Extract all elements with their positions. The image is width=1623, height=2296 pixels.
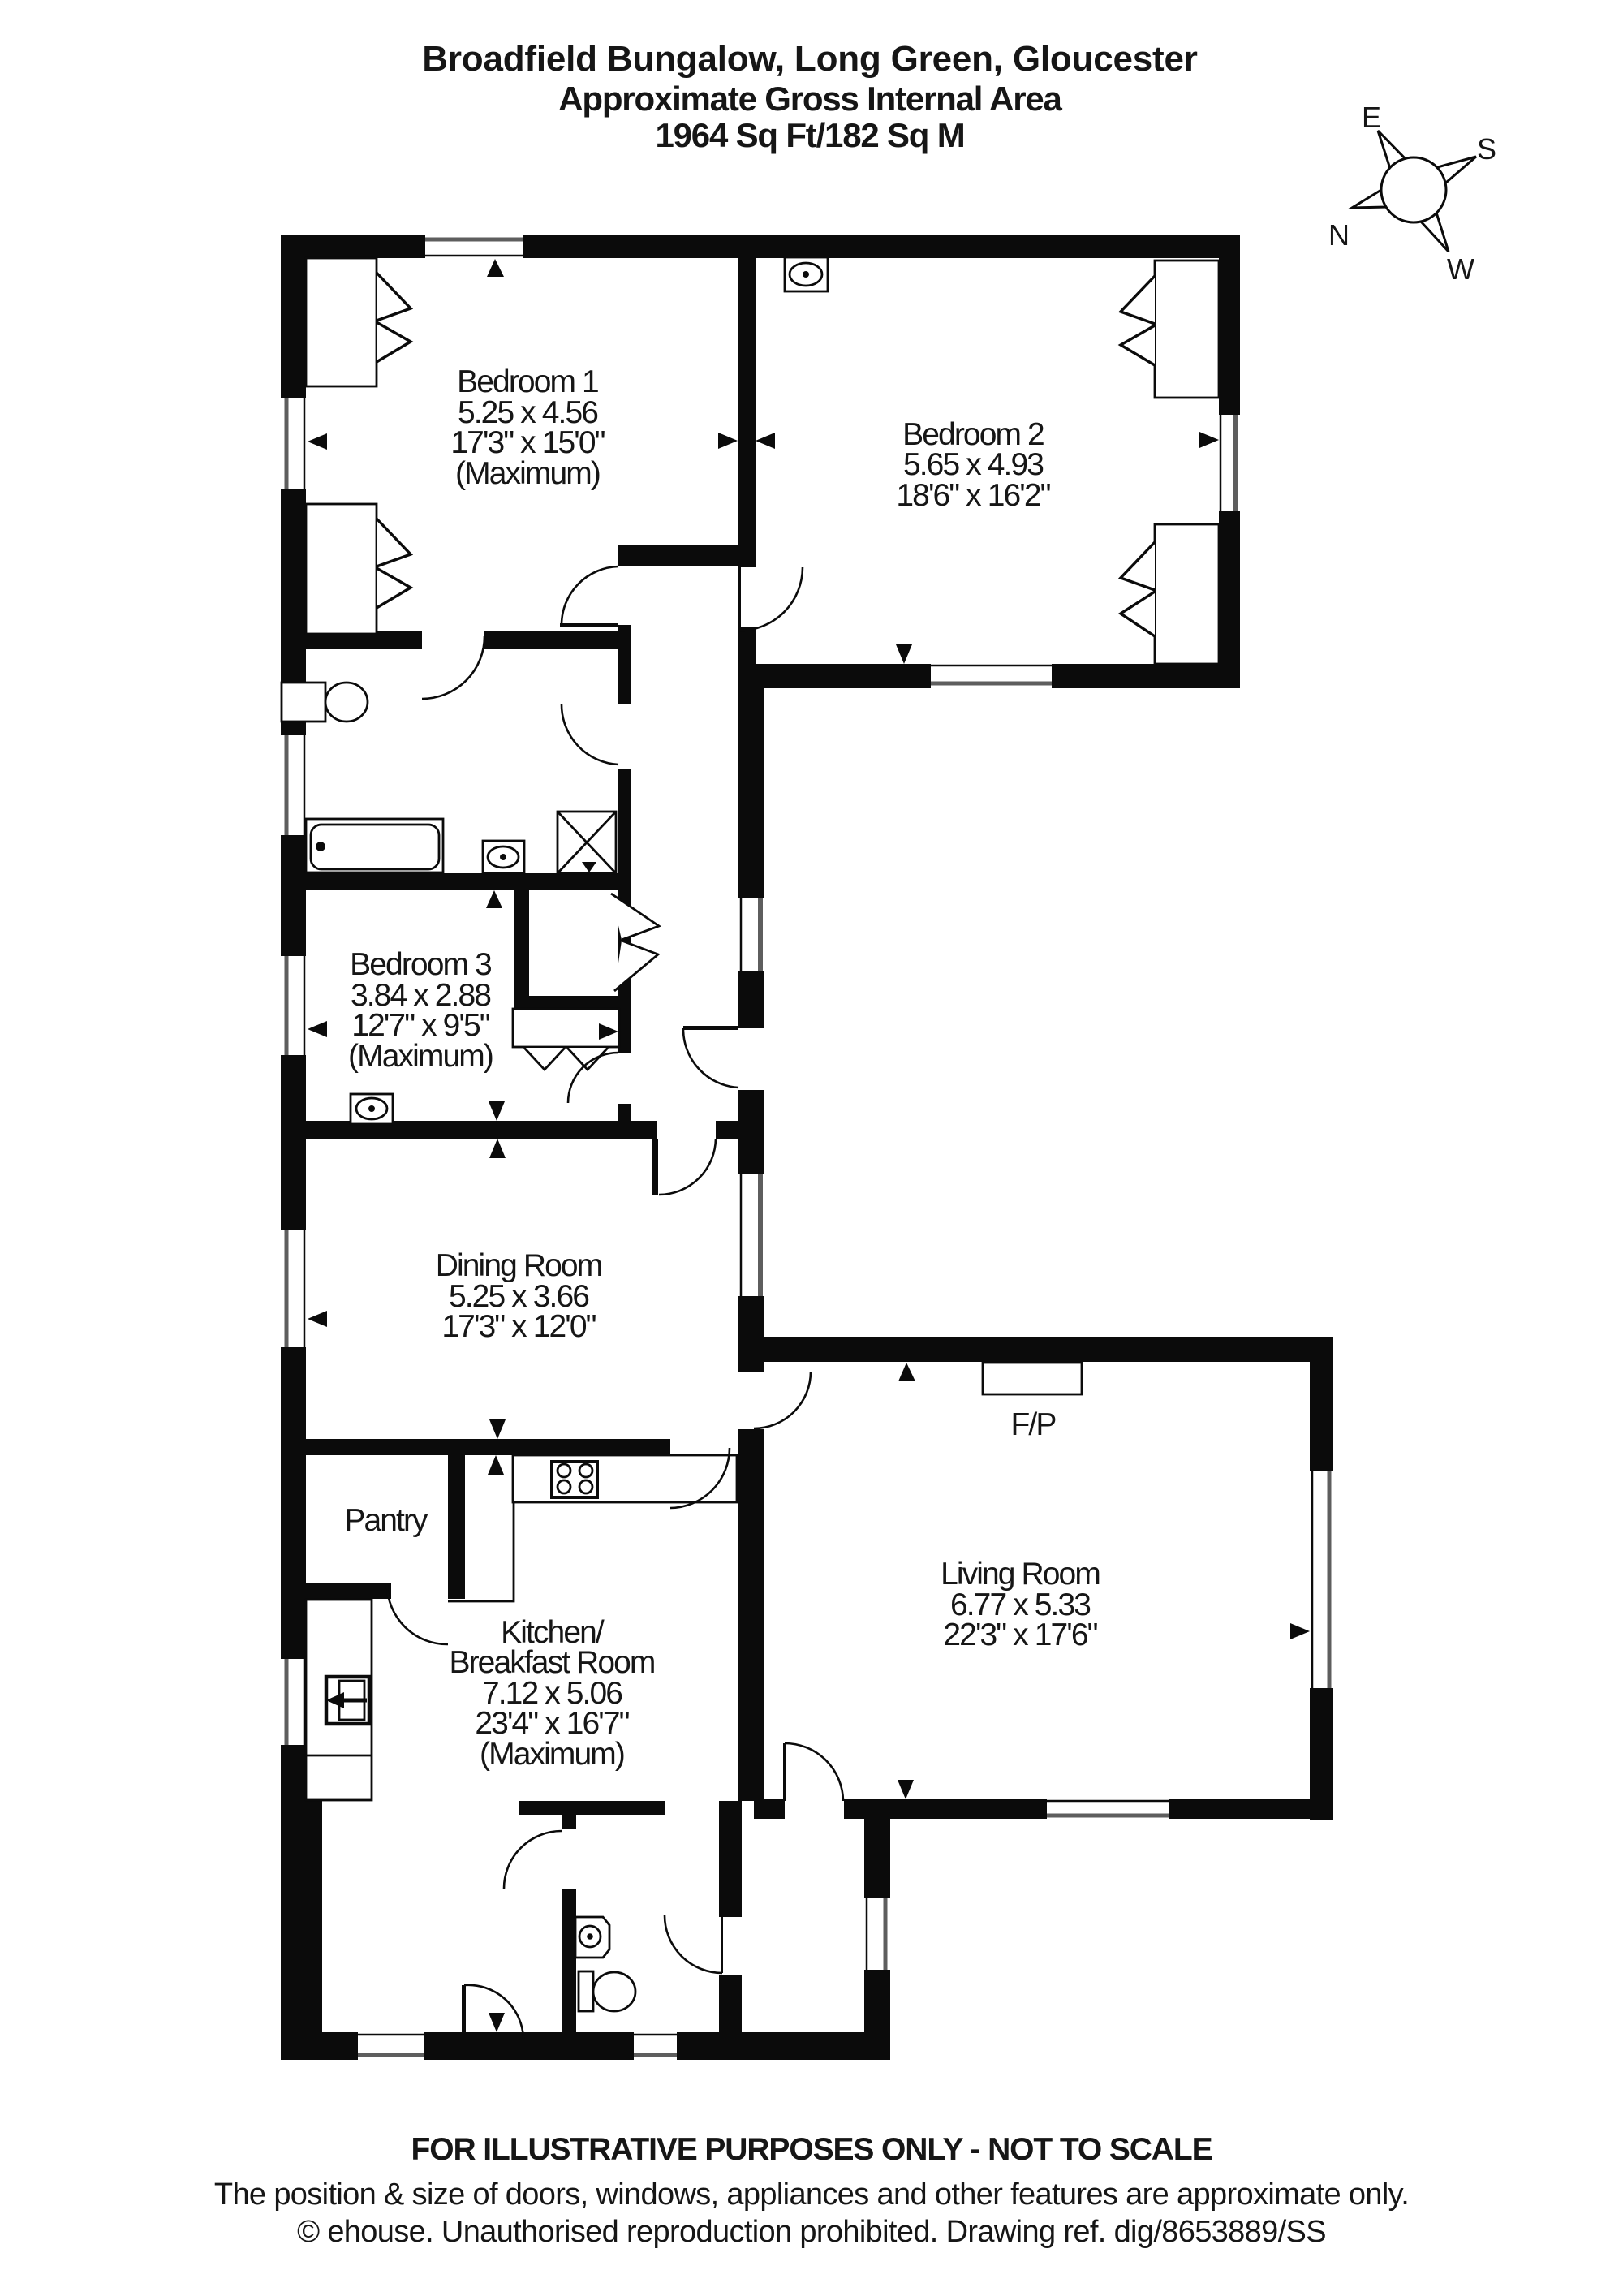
svg-text:Approximate Gross Internal Are: Approximate Gross Internal Area [558,80,1062,118]
svg-text:N: N [1328,218,1350,252]
svg-text:22'3" x 17'6": 22'3" x 17'6" [943,1618,1097,1652]
svg-text:(Maximum): (Maximum) [455,456,600,491]
svg-text:Breakfast Room: Breakfast Room [449,1645,654,1680]
svg-text:5.65 x 4.93: 5.65 x 4.93 [903,447,1043,482]
svg-text:FOR ILLUSTRATIVE PURPOSES ONLY: FOR ILLUSTRATIVE PURPOSES ONLY - NOT TO … [411,2132,1212,2167]
svg-text:E: E [1362,101,1381,134]
svg-text:17'3" x 15'0": 17'3" x 15'0" [450,425,605,460]
svg-text:The position & size of doors,: The position & size of doors, windows, a… [214,2178,1409,2212]
svg-text:© ehouse. Unauthorised reprodu: © ehouse. Unauthorised reproduction proh… [297,2215,1326,2249]
svg-text:Living Room: Living Room [941,1557,1100,1592]
svg-text:17'3" x 12'0": 17'3" x 12'0" [441,1309,596,1344]
svg-text:Pantry: Pantry [344,1503,428,1538]
svg-text:Bedroom 1: Bedroom 1 [457,364,598,399]
svg-text:F/P: F/P [1011,1407,1056,1442]
svg-text:S: S [1477,132,1496,166]
svg-text:(Maximum): (Maximum) [348,1039,493,1074]
svg-text:23'4" x 16'7": 23'4" x 16'7" [475,1706,629,1741]
svg-text:W: W [1447,252,1474,286]
svg-text:Dining Room: Dining Room [436,1248,602,1283]
svg-text:18'6" x 16'2": 18'6" x 16'2" [896,478,1050,513]
svg-text:1964 Sq Ft/182 Sq M: 1964 Sq Ft/182 Sq M [655,116,964,154]
svg-text:(Maximum): (Maximum) [480,1737,624,1772]
svg-text:12'7" x 9'5": 12'7" x 9'5" [351,1008,489,1043]
svg-text:Broadfield Bungalow, Long Gree: Broadfield Bungalow, Long Green, Glouces… [422,39,1198,79]
svg-text:Bedroom 3: Bedroom 3 [350,947,491,982]
